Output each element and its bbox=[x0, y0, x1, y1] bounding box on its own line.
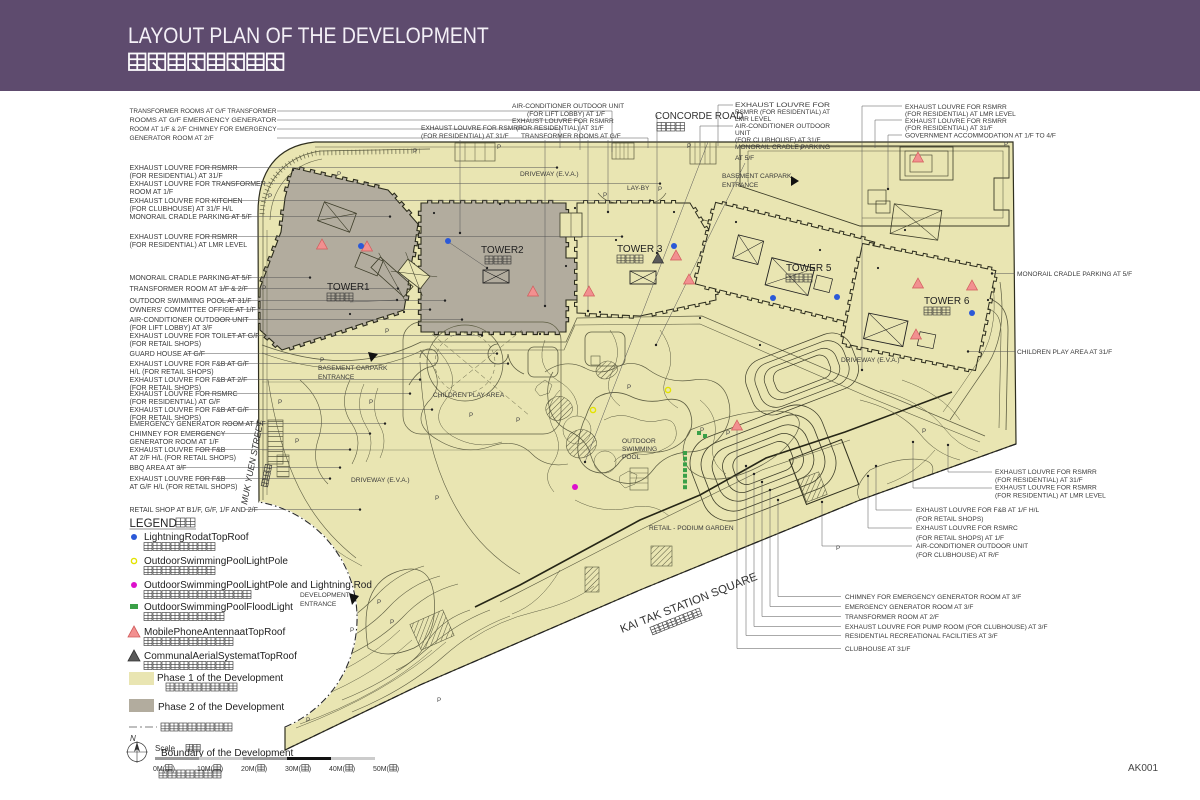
svg-text:GENERATOR ROOM AT 1/F: GENERATOR ROOM AT 1/F bbox=[130, 439, 219, 446]
svg-text:EXHAUST LOUVRE FOR F&B AT 1/F: EXHAUST LOUVRE FOR F&B AT 1/F H/L bbox=[916, 507, 1039, 514]
svg-text:EXHAUST LOUVRE FOR F&B: EXHAUST LOUVRE FOR F&B bbox=[130, 447, 226, 454]
svg-text:EXHAUST LOUVRE FOR TRANSFORMER: EXHAUST LOUVRE FOR TRANSFORMER bbox=[130, 181, 266, 188]
svg-text:P: P bbox=[800, 145, 804, 152]
svg-text:LightningRodatTopRoof: LightningRodatTopRoof bbox=[144, 532, 249, 543]
svg-text:P: P bbox=[385, 328, 389, 335]
svg-text:DEVELOPMENT: DEVELOPMENT bbox=[300, 592, 350, 599]
svg-text:(FOR CLUBHOUSE) AT 31/F: (FOR CLUBHOUSE) AT 31/F bbox=[735, 137, 821, 144]
svg-text:20M(: 20M( bbox=[241, 766, 258, 773]
svg-text:P: P bbox=[922, 428, 926, 435]
svg-text:P: P bbox=[369, 399, 373, 406]
svg-text:H/L (FOR RETAIL SHOPS): H/L (FOR RETAIL SHOPS) bbox=[130, 369, 214, 376]
svg-text:AK001: AK001 bbox=[1128, 763, 1158, 774]
svg-text:30M(: 30M( bbox=[285, 766, 302, 773]
svg-text:TOWER 6: TOWER 6 bbox=[924, 296, 970, 307]
svg-text:OutdoorSwimmingPoolLightPole: OutdoorSwimmingPoolLightPole bbox=[144, 556, 288, 567]
svg-text:LMR LEVEL: LMR LEVEL bbox=[735, 116, 772, 123]
svg-text:Phase 1 of the Development: Phase 1 of the Development bbox=[157, 673, 283, 684]
svg-text:CONCORDE ROAD: CONCORDE ROAD bbox=[655, 111, 743, 122]
svg-text:ROOMS AT G/F EMERGENCY GENERAT: ROOMS AT G/F EMERGENCY GENERATOR bbox=[130, 117, 277, 124]
svg-text:GUARD HOUSE AT G/F: GUARD HOUSE AT G/F bbox=[130, 351, 206, 358]
svg-text:N: N bbox=[130, 734, 136, 743]
svg-text:P: P bbox=[268, 193, 272, 200]
svg-text:(FOR LIFT LOBBY) AT 3/F: (FOR LIFT LOBBY) AT 3/F bbox=[130, 325, 213, 332]
svg-text:CLUBHOUSE AT 31/F: CLUBHOUSE AT 31/F bbox=[845, 646, 910, 653]
svg-text:AT 2/F H/L (FOR RETAIL SHOPS): AT 2/F H/L (FOR RETAIL SHOPS) bbox=[130, 455, 236, 462]
svg-text:): ) bbox=[173, 766, 175, 773]
svg-text:EXHAUST LOUVRE FOR RSMRR: EXHAUST LOUVRE FOR RSMRR bbox=[995, 469, 1097, 476]
svg-text:BBQ AREA AT 3/F: BBQ AREA AT 3/F bbox=[130, 465, 187, 472]
svg-text:EXHAUST LOUVRE FOR RSMRC: EXHAUST LOUVRE FOR RSMRC bbox=[916, 525, 1018, 532]
svg-text:(FOR CLUBHOUSE) AT 31/F H/L: (FOR CLUBHOUSE) AT 31/F H/L bbox=[130, 206, 234, 213]
svg-text:MONORAIL CRADLE PARKING AT 5/F: MONORAIL CRADLE PARKING AT 5/F bbox=[1017, 271, 1132, 278]
svg-text:OutdoorSwimmingPoolLightPole a: OutdoorSwimmingPoolLightPole and Lightni… bbox=[144, 580, 372, 591]
svg-text:(FOR RESIDENTIAL) AT LMR LEVEL: (FOR RESIDENTIAL) AT LMR LEVEL bbox=[905, 111, 1016, 118]
svg-text:AIR-CONDITIONER OUTDOOR UNIT: AIR-CONDITIONER OUTDOOR UNIT bbox=[130, 317, 250, 324]
svg-text:P: P bbox=[627, 384, 631, 391]
svg-text:MobilePhoneAntennaatTopRoof: MobilePhoneAntennaatTopRoof bbox=[144, 627, 285, 638]
svg-text:(FOR RETAIL SHOPS): (FOR RETAIL SHOPS) bbox=[130, 341, 202, 348]
svg-text:(FOR RESIDENTIAL) AT 31/F: (FOR RESIDENTIAL) AT 31/F bbox=[905, 125, 993, 132]
svg-text:TOWER2: TOWER2 bbox=[481, 245, 524, 256]
svg-text:TRANSFORMER ROOMS AT G/F TRANS: TRANSFORMER ROOMS AT G/F TRANSFORMER bbox=[130, 108, 277, 115]
svg-text:P: P bbox=[516, 417, 520, 424]
svg-text:CHILDREN PLAY AREA: CHILDREN PLAY AREA bbox=[433, 392, 505, 399]
svg-text:DRIVEWAY (E.V.A.): DRIVEWAY (E.V.A.) bbox=[351, 477, 410, 484]
svg-text:EXHAUST LOUVRE FOR KITCHEN: EXHAUST LOUVRE FOR KITCHEN bbox=[130, 198, 243, 205]
svg-text:RETAIL - PODIUM GARDEN: RETAIL - PODIUM GARDEN bbox=[649, 525, 734, 532]
svg-text:TOWER 3: TOWER 3 bbox=[617, 244, 663, 255]
svg-text:P: P bbox=[337, 171, 341, 178]
svg-text:TOWER 5: TOWER 5 bbox=[786, 263, 832, 274]
svg-text:EXHAUST LOUVRE FOR RSMRR: EXHAUST LOUVRE FOR RSMRR bbox=[905, 118, 1007, 125]
svg-text:): ) bbox=[309, 766, 311, 773]
svg-text:10M(: 10M( bbox=[197, 766, 214, 773]
svg-text:EMERGENCY GENERATOR ROOM AT 3/: EMERGENCY GENERATOR ROOM AT 3/F bbox=[845, 604, 973, 611]
svg-text:EXHAUST LOUVRE FOR RSMRR: EXHAUST LOUVRE FOR RSMRR bbox=[995, 485, 1097, 492]
svg-text:AT 5/F: AT 5/F bbox=[735, 155, 754, 162]
svg-text:BASEMENT CARPARK: BASEMENT CARPARK bbox=[318, 365, 388, 372]
svg-text:EXHAUST LOUVRE FOR RSMRR: EXHAUST LOUVRE FOR RSMRR bbox=[512, 118, 614, 125]
svg-text:(FOR RESIDENTIAL) AT 31/F: (FOR RESIDENTIAL) AT 31/F bbox=[421, 133, 509, 140]
svg-text:AIR-CONDITIONER OUTDOOR: AIR-CONDITIONER OUTDOOR bbox=[735, 123, 830, 130]
svg-text:EXHAUST LOUVRE FOR RSMRC: EXHAUST LOUVRE FOR RSMRC bbox=[130, 391, 238, 398]
svg-text:SWIMMING: SWIMMING bbox=[622, 446, 657, 453]
svg-text:(FOR RETAIL SHOPS) AT 1/F: (FOR RETAIL SHOPS) AT 1/F bbox=[916, 535, 1004, 542]
svg-text:TOWER1: TOWER1 bbox=[327, 282, 370, 293]
svg-text:CHIMNEY FOR EMERGENCY GENERATO: CHIMNEY FOR EMERGENCY GENERATOR ROOM AT … bbox=[845, 594, 1021, 601]
svg-text:EXHAUST LOUVRE FOR F&B AT G/F: EXHAUST LOUVRE FOR F&B AT G/F bbox=[130, 407, 249, 414]
svg-text:P: P bbox=[413, 148, 417, 155]
svg-text:ROOM AT 1/F & 2/F CHIMNEY FOR: ROOM AT 1/F & 2/F CHIMNEY FOR EMERGENCY bbox=[130, 126, 278, 133]
svg-text:P: P bbox=[390, 619, 394, 626]
svg-text:P: P bbox=[469, 412, 473, 419]
svg-text:(FOR RESIDENTIAL) AT 31/F: (FOR RESIDENTIAL) AT 31/F bbox=[130, 173, 223, 180]
svg-text:): ) bbox=[397, 766, 399, 773]
svg-text:P: P bbox=[350, 627, 354, 634]
svg-text:P: P bbox=[278, 399, 282, 406]
svg-text:(FOR RESIDENTIAL) AT 31/F: (FOR RESIDENTIAL) AT 31/F bbox=[995, 477, 1083, 484]
svg-text:ENTRANCE: ENTRANCE bbox=[722, 182, 759, 189]
svg-text:(FOR RESIDENTIAL) AT G/F: (FOR RESIDENTIAL) AT G/F bbox=[130, 399, 221, 406]
svg-text:CommunalAerialSystematTopRoof: CommunalAerialSystematTopRoof bbox=[144, 651, 297, 662]
svg-text:P: P bbox=[435, 495, 439, 502]
svg-text:TRANSFORMER ROOMS AT G/F: TRANSFORMER ROOMS AT G/F bbox=[521, 133, 621, 140]
svg-text:(FOR CLUBHOUSE) AT R/F: (FOR CLUBHOUSE) AT R/F bbox=[916, 552, 999, 559]
svg-text:ENTRANCE: ENTRANCE bbox=[300, 601, 337, 608]
svg-text:P: P bbox=[1004, 141, 1008, 148]
svg-text:P: P bbox=[437, 697, 441, 704]
svg-text:EXHAUST LOUVRE FOR F&B AT G/F: EXHAUST LOUVRE FOR F&B AT G/F bbox=[130, 361, 249, 368]
svg-text:GENERATOR ROOM AT 2/F: GENERATOR ROOM AT 2/F bbox=[130, 135, 214, 142]
svg-text:LEGEND: LEGEND bbox=[130, 518, 177, 530]
svg-text:POOL: POOL bbox=[622, 454, 641, 461]
svg-text:): ) bbox=[221, 766, 223, 773]
svg-text:P: P bbox=[262, 285, 266, 292]
svg-text:MONORAIL CRADLE PARKING AT 5/F: MONORAIL CRADLE PARKING AT 5/F bbox=[130, 275, 252, 282]
svg-text:DRIVEWAY (E.V.A.): DRIVEWAY (E.V.A.) bbox=[841, 357, 900, 364]
svg-text:MONORAIL CRADLE PARKING AT 5/F: MONORAIL CRADLE PARKING AT 5/F bbox=[130, 214, 252, 221]
svg-text:AIR-CONDITIONER OUTDOOR UNIT: AIR-CONDITIONER OUTDOOR UNIT bbox=[916, 543, 1028, 550]
svg-text:P: P bbox=[603, 192, 607, 199]
svg-text:GOVERNMENT ACCOMMODATION AT 1/: GOVERNMENT ACCOMMODATION AT 1/F TO 4/F bbox=[905, 133, 1056, 140]
svg-text:OUTDOOR SWIMMING POOL AT 31/F: OUTDOOR SWIMMING POOL AT 31/F bbox=[130, 298, 252, 305]
svg-text:EXHAUST LOUVRE FOR PUMP ROOM (: EXHAUST LOUVRE FOR PUMP ROOM (FOR CLUBHO… bbox=[845, 624, 1047, 631]
svg-text:EXHAUST LOUVRE FOR F&B AT 2/F: EXHAUST LOUVRE FOR F&B AT 2/F bbox=[130, 377, 248, 384]
svg-text:ROOM AT 1/F: ROOM AT 1/F bbox=[130, 189, 174, 196]
svg-text:(FOR LIFT LOBBY) AT 1/F: (FOR LIFT LOBBY) AT 1/F bbox=[527, 111, 605, 118]
svg-text:RESIDENTIAL RECREATIONAL FACIL: RESIDENTIAL RECREATIONAL FACILITIES AT 3… bbox=[845, 633, 998, 640]
svg-text:RETAIL SHOP AT B1/F, G/F, 1/F: RETAIL SHOP AT B1/F, G/F, 1/F AND 2/F bbox=[130, 507, 258, 514]
svg-text:OutdoorSwimmingPoolFloodLight: OutdoorSwimmingPoolFloodLight bbox=[144, 602, 293, 613]
svg-text:(FOR RESIDENTIAL) AT LMR LEVEL: (FOR RESIDENTIAL) AT LMR LEVEL bbox=[995, 493, 1106, 500]
svg-text:40M(: 40M( bbox=[329, 766, 346, 773]
svg-text:): ) bbox=[353, 766, 355, 773]
svg-text:EMERGENCY GENERATOR ROOM AT 1/: EMERGENCY GENERATOR ROOM AT 1/F bbox=[130, 421, 266, 428]
svg-text:): ) bbox=[265, 766, 267, 773]
svg-text:P: P bbox=[295, 438, 299, 445]
svg-text:OUTDOOR: OUTDOOR bbox=[622, 438, 656, 445]
svg-text:P: P bbox=[497, 144, 501, 151]
svg-text:CHILDREN PLAY AREA AT 31/F: CHILDREN PLAY AREA AT 31/F bbox=[1017, 349, 1112, 356]
svg-text:OWNERS' COMMITTEE OFFICE AT 1/: OWNERS' COMMITTEE OFFICE AT 1/F bbox=[130, 307, 256, 314]
svg-text:P: P bbox=[658, 186, 662, 193]
svg-text:0M(: 0M( bbox=[153, 766, 166, 773]
svg-text:AT G/F H/L (FOR RETAIL SHOPS): AT G/F H/L (FOR RETAIL SHOPS) bbox=[130, 484, 238, 491]
svg-text:P: P bbox=[320, 357, 324, 364]
svg-text:AIR-CONDITIONER OUTDOOR UNIT: AIR-CONDITIONER OUTDOOR UNIT bbox=[512, 103, 624, 110]
svg-text:50M(: 50M( bbox=[373, 766, 390, 773]
svg-text:DRIVEWAY (E.V.A.): DRIVEWAY (E.V.A.) bbox=[520, 171, 579, 178]
svg-text:EXHAUST LOUVRE FOR RSMRR: EXHAUST LOUVRE FOR RSMRR bbox=[130, 165, 238, 172]
svg-text:(FOR RESIDENTIAL) AT 31/F: (FOR RESIDENTIAL) AT 31/F bbox=[516, 125, 604, 132]
svg-text:(FOR RESIDENTIAL) AT LMR LEVEL: (FOR RESIDENTIAL) AT LMR LEVEL bbox=[130, 242, 248, 249]
svg-text:P: P bbox=[726, 430, 730, 437]
svg-text:LAY-BY: LAY-BY bbox=[627, 185, 650, 192]
svg-text:UNIT: UNIT bbox=[735, 130, 750, 137]
svg-text:TRANSFORMER ROOM AT 2/F: TRANSFORMER ROOM AT 2/F bbox=[845, 614, 939, 621]
svg-text:P: P bbox=[306, 717, 310, 724]
svg-text:P: P bbox=[836, 545, 840, 552]
svg-text:P: P bbox=[687, 143, 691, 150]
svg-text:P: P bbox=[377, 599, 381, 606]
svg-text:TRANSFORMER ROOM AT 1/F & 2/F: TRANSFORMER ROOM AT 1/F & 2/F bbox=[130, 286, 248, 293]
svg-text:EXHAUST LOUVRE FOR: EXHAUST LOUVRE FOR bbox=[735, 102, 830, 109]
svg-text:CHIMNEY FOR EMERGENCY: CHIMNEY FOR EMERGENCY bbox=[130, 431, 226, 438]
svg-text:RSMRR (FOR RESIDENTIAL) AT: RSMRR (FOR RESIDENTIAL) AT bbox=[735, 109, 830, 116]
svg-text:EXHAUST LOUVRE FOR TOILET AT G: EXHAUST LOUVRE FOR TOILET AT G/F bbox=[130, 333, 260, 340]
svg-text:ENTRANCE: ENTRANCE bbox=[318, 374, 355, 381]
svg-text:EXHAUST LOUVRE FOR RSMRR: EXHAUST LOUVRE FOR RSMRR bbox=[905, 104, 1007, 111]
svg-text:EXHAUST LOUVRE FOR RSMRR: EXHAUST LOUVRE FOR RSMRR bbox=[421, 125, 523, 132]
svg-text:BASEMENT CARPARK: BASEMENT CARPARK bbox=[722, 173, 792, 180]
svg-text:EXHAUST LOUVRE FOR F&B: EXHAUST LOUVRE FOR F&B bbox=[130, 476, 226, 483]
svg-text:Phase 2 of the Development: Phase 2 of the Development bbox=[158, 702, 284, 713]
svg-text:MONORAIL CRADLE PARKING: MONORAIL CRADLE PARKING bbox=[735, 144, 830, 151]
svg-text:(FOR RETAIL SHOPS): (FOR RETAIL SHOPS) bbox=[916, 516, 983, 523]
svg-text:EXHAUST LOUVRE FOR RSMRR: EXHAUST LOUVRE FOR RSMRR bbox=[130, 234, 238, 241]
